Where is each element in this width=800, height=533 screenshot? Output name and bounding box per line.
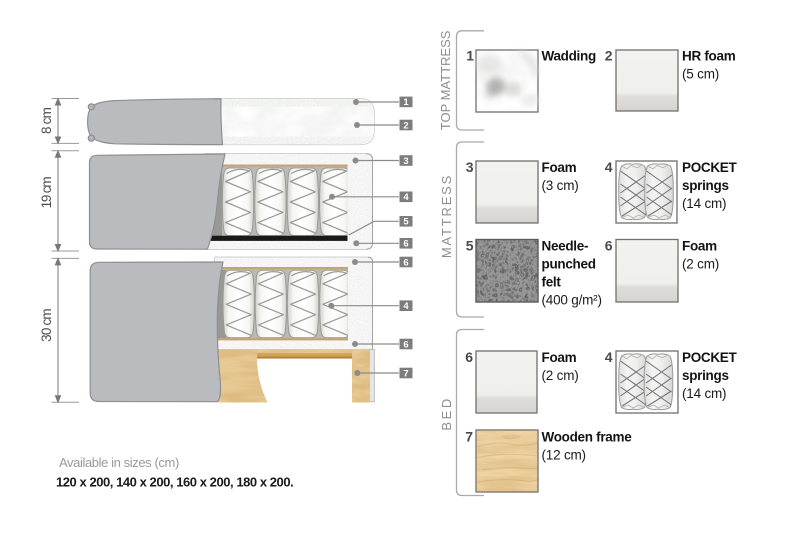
svg-text:(400 g/m²): (400 g/m²) — [542, 293, 602, 308]
svg-text:30 cm: 30 cm — [39, 309, 54, 342]
svg-text:4: 4 — [403, 192, 409, 203]
svg-text:4: 4 — [403, 301, 409, 312]
svg-text:Needle-: Needle- — [542, 239, 589, 254]
svg-text:POCKET: POCKET — [682, 350, 738, 365]
svg-text:6: 6 — [403, 339, 408, 350]
svg-text:120 x 200, 140 x 200, 160 x 20: 120 x 200, 140 x 200, 160 x 200, 180 x 2… — [56, 475, 293, 490]
svg-text:MATTRESS: MATTRESS — [439, 174, 454, 258]
svg-text:5: 5 — [466, 238, 474, 254]
svg-text:springs: springs — [682, 178, 729, 193]
svg-text:Foam: Foam — [682, 239, 717, 254]
svg-text:(5 cm): (5 cm) — [682, 67, 719, 82]
svg-text:7: 7 — [403, 368, 408, 379]
svg-text:TOP MATTRESS: TOP MATTRESS — [438, 30, 453, 130]
svg-text:6: 6 — [403, 257, 408, 268]
svg-text:(3 cm): (3 cm) — [542, 178, 579, 193]
svg-text:6: 6 — [403, 239, 408, 250]
svg-text:1: 1 — [466, 48, 474, 64]
svg-text:BED: BED — [439, 396, 454, 431]
svg-text:POCKET: POCKET — [682, 160, 738, 175]
svg-text:felt: felt — [542, 275, 562, 290]
svg-text:Foam: Foam — [542, 160, 577, 175]
svg-text:5: 5 — [403, 217, 409, 228]
svg-text:19 cm: 19 cm — [39, 177, 54, 209]
svg-text:(2 cm): (2 cm) — [542, 368, 579, 383]
svg-text:8 cm: 8 cm — [39, 107, 54, 134]
svg-text:(12 cm): (12 cm) — [542, 448, 586, 463]
svg-text:4: 4 — [605, 159, 613, 175]
svg-text:(2 cm): (2 cm) — [682, 257, 719, 272]
svg-text:6: 6 — [465, 349, 473, 365]
svg-text:4: 4 — [605, 349, 613, 365]
svg-text:Available in sizes (cm): Available in sizes (cm) — [59, 455, 179, 470]
svg-text:2: 2 — [403, 120, 408, 131]
svg-text:springs: springs — [682, 368, 729, 383]
svg-text:(14 cm): (14 cm) — [682, 196, 726, 211]
svg-text:Foam: Foam — [542, 350, 577, 365]
svg-text:1: 1 — [403, 97, 409, 108]
svg-text:3: 3 — [466, 159, 474, 175]
svg-text:6: 6 — [605, 238, 613, 254]
svg-text:Wooden frame: Wooden frame — [542, 430, 633, 445]
svg-text:Wadding: Wadding — [542, 49, 596, 64]
svg-text:7: 7 — [465, 429, 473, 445]
svg-text:(14 cm): (14 cm) — [682, 386, 726, 401]
svg-text:HR foam: HR foam — [682, 49, 736, 64]
svg-text:punched: punched — [542, 257, 596, 272]
svg-text:2: 2 — [605, 48, 613, 64]
svg-text:3: 3 — [403, 156, 408, 167]
